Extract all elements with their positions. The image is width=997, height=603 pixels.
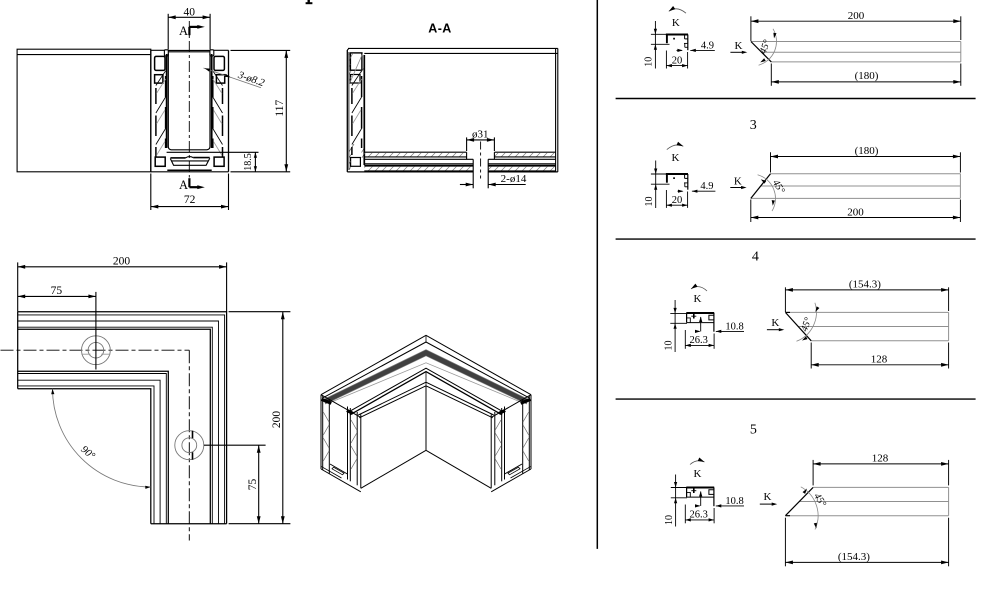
svg-text:40: 40 xyxy=(183,6,195,18)
svg-text:(180): (180) xyxy=(855,70,879,82)
svg-text:(154.3): (154.3) xyxy=(849,279,881,291)
svg-text:K: K xyxy=(672,17,680,29)
svg-text:117: 117 xyxy=(274,100,286,117)
svg-text:ø31: ø31 xyxy=(472,129,489,141)
svg-text:K: K xyxy=(694,468,702,480)
svg-text:5: 5 xyxy=(750,423,757,438)
svg-text:20: 20 xyxy=(672,195,683,206)
svg-text:26.3: 26.3 xyxy=(690,510,708,521)
svg-text:26.3: 26.3 xyxy=(690,335,708,346)
svg-text:10: 10 xyxy=(644,57,655,67)
svg-text:(180): (180) xyxy=(855,145,879,157)
svg-text:20: 20 xyxy=(672,55,683,66)
svg-text:A-A: A-A xyxy=(428,22,451,36)
svg-text:10: 10 xyxy=(664,515,675,525)
svg-text:10: 10 xyxy=(663,341,674,351)
svg-text:10: 10 xyxy=(644,197,655,207)
svg-text:200: 200 xyxy=(113,256,131,268)
svg-text:4: 4 xyxy=(752,250,759,265)
svg-text:K: K xyxy=(771,317,779,329)
svg-text:200: 200 xyxy=(271,411,283,429)
svg-text:A: A xyxy=(179,24,188,38)
svg-text:75: 75 xyxy=(247,479,259,491)
svg-text:10.8: 10.8 xyxy=(725,496,743,507)
svg-text:128: 128 xyxy=(871,353,888,365)
svg-text:75: 75 xyxy=(51,285,63,297)
svg-text:128: 128 xyxy=(872,453,889,465)
svg-text:(154.3): (154.3) xyxy=(838,551,870,563)
svg-text:200: 200 xyxy=(848,10,865,22)
svg-text:10.8: 10.8 xyxy=(725,322,743,333)
svg-text:K: K xyxy=(694,293,702,305)
svg-text:K: K xyxy=(764,491,772,503)
svg-text:K: K xyxy=(735,40,743,52)
svg-text:2-ø14: 2-ø14 xyxy=(501,173,527,185)
svg-text:K: K xyxy=(734,176,742,188)
svg-text:200: 200 xyxy=(847,206,864,218)
svg-text:4.9: 4.9 xyxy=(701,40,714,51)
svg-text:K: K xyxy=(672,152,680,164)
svg-text:3: 3 xyxy=(750,118,757,133)
svg-text:72: 72 xyxy=(184,194,196,206)
svg-text:4.9: 4.9 xyxy=(700,181,713,192)
svg-text:A: A xyxy=(179,178,188,192)
svg-text:18.5: 18.5 xyxy=(243,153,254,171)
